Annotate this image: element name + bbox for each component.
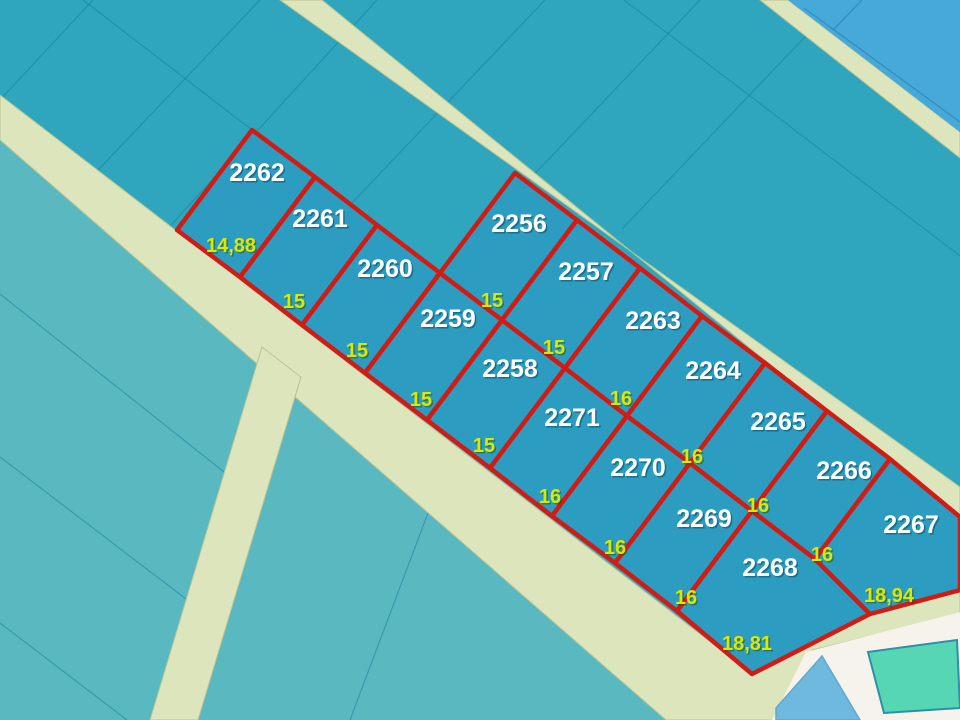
parcel-number-2263: 2263 (625, 307, 681, 335)
parcel-dimension-2271: 16 (539, 486, 561, 508)
parcel-number-2266: 2266 (816, 457, 872, 485)
parcel-dimension-2269: 16 (675, 587, 697, 609)
parcel-number-2270: 2270 (610, 454, 666, 482)
parcel-dimension-2261: 15 (283, 291, 305, 313)
parcel-dimension-2267: 18,94 (864, 585, 915, 607)
parcel-dimension-2266: 16 (811, 544, 833, 566)
parcel-dimension-2257: 15 (543, 337, 565, 359)
parcel-number-2260: 2260 (357, 255, 413, 283)
cadastral-map[interactable]: 2262226222612261226022602259225922582258… (0, 0, 960, 720)
parcel-number-2262: 2262 (229, 159, 285, 187)
parcel-number-2265: 2265 (750, 408, 806, 436)
parcel-number-2259: 2259 (420, 305, 476, 333)
parcel-number-2264: 2264 (685, 357, 741, 385)
parcel-number-2271: 2271 (544, 404, 600, 432)
parcel-number-2261: 2261 (292, 205, 348, 233)
parcel-dimension-2259: 15 (410, 389, 432, 411)
parcel-dimension-2264: 16 (681, 446, 703, 468)
parcel-dimension-2262: 14,88 (206, 235, 256, 257)
parcel-number-2269: 2269 (676, 505, 732, 533)
parcel-dimension-2256: 15 (481, 290, 503, 312)
parcel-dimension-2263: 16 (610, 388, 632, 410)
parcel-dimension-2270: 16 (604, 537, 626, 559)
parcel-number-2258: 2258 (482, 355, 538, 383)
green-plot (868, 640, 960, 713)
parcel-number-2257: 2257 (558, 258, 614, 286)
parcel-dimension-2258: 15 (473, 435, 495, 457)
cadastral-map-viewport[interactable]: 2262226222612261226022602259225922582258… (0, 0, 960, 720)
parcel-dimension-2268: 18,81 (722, 633, 772, 655)
parcel-number-2267: 2267 (883, 511, 939, 539)
parcel-number-2268: 2268 (742, 554, 798, 582)
parcel-number-2256: 2256 (491, 210, 547, 238)
parcel-dimension-2260: 15 (346, 340, 368, 362)
parcel-dimension-2265: 16 (747, 495, 769, 517)
